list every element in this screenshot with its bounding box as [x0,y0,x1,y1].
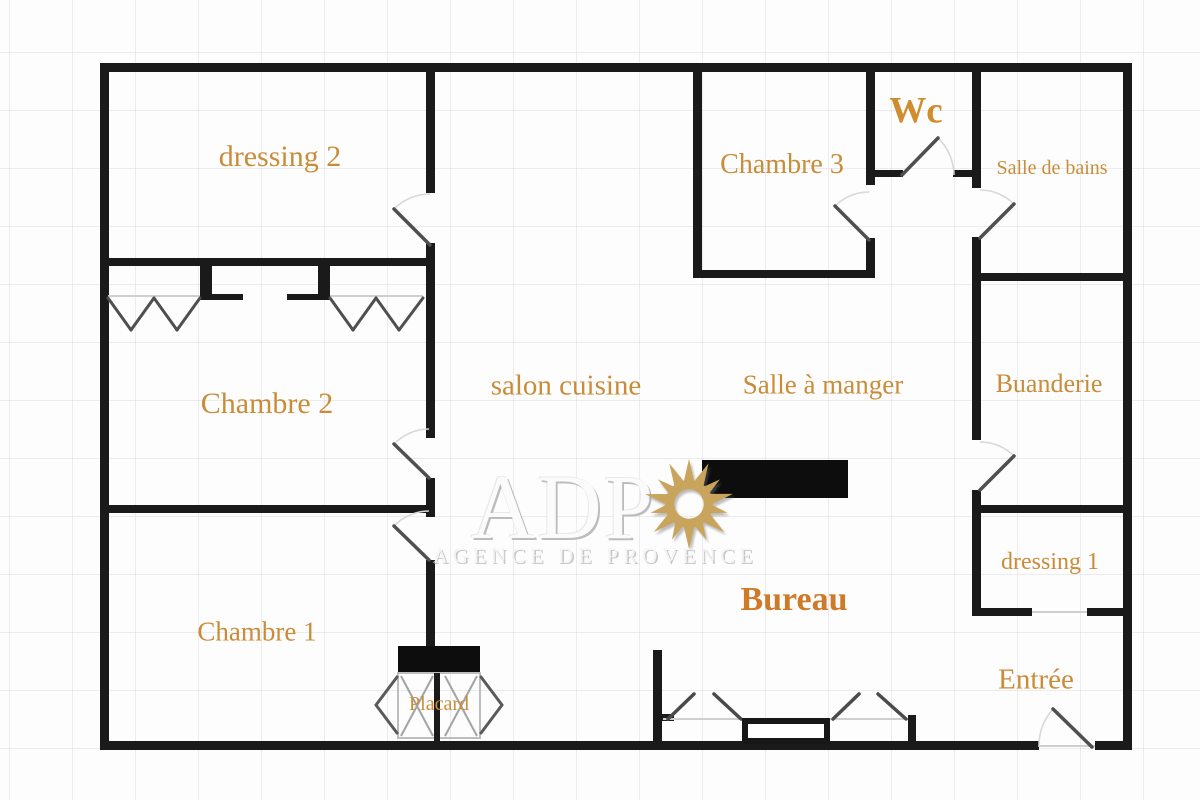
windows-layer [668,694,906,719]
room-label-dressing-2: dressing 2 [219,142,342,172]
room-label-salle-de-bains: Salle de bains [996,158,1107,178]
room-label-salon-cuisine: salon cuisine [491,372,642,401]
room-label-salle-a-manger: Salle à manger [743,372,903,399]
wall-buanderie-dressing1 [972,505,1132,513]
door-entree [1053,709,1092,747]
wall-bureau-stub [653,650,662,750]
counter-block [702,460,848,498]
wall-spine-1 [426,63,435,193]
door-dressing2 [394,209,430,245]
room-label-entree: Entrée [998,666,1074,695]
wall-outer-left [100,63,109,750]
door-chambre3 [835,206,869,240]
wall-chambre3-bottom [693,270,875,278]
room-label-wc: Wc [889,93,942,130]
closet-stub-left-foot [200,294,243,300]
wall-dressing2-chambre2 [100,258,435,266]
wall-outer-bottom-right [1095,741,1132,750]
wall-outer-bottom-left [100,741,1039,750]
door-wc [902,138,938,175]
wall-wc-left-top [866,63,875,185]
door-buanderie [980,456,1014,490]
wall-chambre3-left [693,63,702,278]
wall-chambre2-chambre1 [100,505,435,513]
wall-right-column-mid [972,237,981,440]
room-label-chambre-2: Chambre 2 [201,389,333,419]
door-chambre1 [394,526,429,560]
closet-doors-layer [108,298,423,330]
room-label-bureau: Bureau [740,583,847,617]
wall-dressing1-bottom-right [1087,608,1132,616]
window-bay-block [745,721,827,741]
furniture-layer [398,460,848,673]
wall-spine-2 [426,243,435,438]
door-salle-de-bains [980,204,1014,238]
closet-stub-left [200,266,212,297]
wall-dressing1-bottom-left [972,608,1032,616]
room-label-placard: Placard [409,694,469,714]
door-chambre2 [394,444,429,478]
wall-window-tick-right [908,715,916,745]
wall-spine-4 [426,560,435,647]
closet-stub-right-foot [287,294,330,300]
sills-layer [108,296,1095,746]
closet-stub-right [318,266,330,297]
wall-wc-right-top [972,63,981,188]
wall-sdb-buanderie [972,273,1132,281]
floor-plan: ADP [0,0,1200,800]
room-label-chambre-1: Chambre 1 [197,619,316,646]
door-arcs-layer [394,138,1053,747]
placard-header-block [398,646,480,673]
wall-wc-bottom-left [866,170,903,177]
wall-outer-right [1123,63,1132,750]
room-label-dressing-1: dressing 1 [1001,550,1099,574]
room-label-chambre-3: Chambre 3 [720,151,844,179]
wall-wc-bottom-right [953,170,981,177]
room-label-buanderie: Buanderie [996,371,1103,397]
